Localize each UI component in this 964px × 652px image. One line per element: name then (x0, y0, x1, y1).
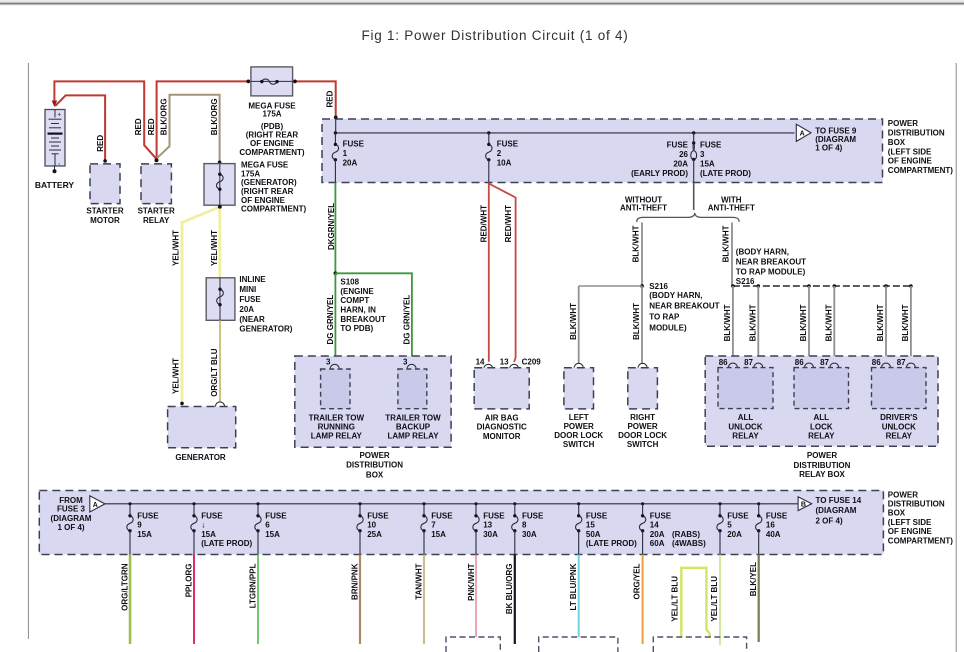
svg-text:POWER: POWER (888, 119, 918, 128)
svg-text:15A: 15A (201, 530, 216, 539)
svg-text:BATTERY: BATTERY (35, 180, 75, 190)
svg-text:RELAY: RELAY (732, 431, 759, 440)
svg-text:(LATE PROD): (LATE PROD) (700, 169, 751, 178)
svg-text:FUSE: FUSE (201, 512, 223, 521)
svg-text:FUSE: FUSE (239, 295, 261, 304)
svg-text:BOX: BOX (366, 470, 384, 479)
svg-text:BLK/WHT: BLK/WHT (632, 225, 641, 262)
svg-text:FUSE: FUSE (137, 512, 159, 521)
svg-text:POWER: POWER (807, 451, 837, 460)
svg-text:(EARLY PROD): (EARLY PROD) (631, 169, 688, 178)
svg-text:14: 14 (650, 521, 659, 530)
svg-text:+: + (58, 113, 62, 119)
svg-text:87: 87 (820, 358, 829, 367)
svg-text:(RIGHT REAR: (RIGHT REAR (241, 187, 294, 196)
svg-text:COMPARTMENT): COMPARTMENT) (888, 166, 954, 175)
svg-text:9: 9 (137, 521, 142, 530)
svg-text:2: 2 (497, 149, 502, 158)
svg-text:(BODY HARN,: (BODY HARN, (649, 291, 702, 300)
svg-text:1: 1 (343, 149, 348, 158)
svg-text:20A: 20A (343, 158, 358, 167)
svg-text:20A: 20A (673, 159, 688, 168)
svg-text:20A: 20A (239, 305, 254, 314)
svg-text:86: 86 (719, 358, 728, 367)
svg-text:(4WABS): (4WABS) (672, 539, 706, 548)
svg-text:BLK/WHT: BLK/WHT (722, 225, 731, 262)
svg-text:TRAILER TOW: TRAILER TOW (385, 413, 441, 422)
svg-text:RIGHT: RIGHT (630, 413, 655, 422)
svg-text:ANTI-THEFT: ANTI-THEFT (708, 203, 755, 212)
svg-text:RED: RED (326, 90, 335, 107)
svg-text:DG GRN/YEL: DG GRN/YEL (403, 295, 412, 345)
svg-text:DISTRIBUTION: DISTRIBUTION (888, 129, 945, 138)
svg-text:26: 26 (679, 150, 688, 159)
svg-text:BLK/WHT: BLK/WHT (901, 304, 910, 341)
svg-text:COMPARTMENT): COMPARTMENT) (241, 205, 307, 214)
svg-text:(PDB): (PDB) (261, 122, 284, 131)
svg-text:15: 15 (586, 521, 595, 530)
svg-text:Fig 1: Power Distribution Circ: Fig 1: Power Distribution Circuit (1 of … (361, 28, 628, 43)
svg-text:FUSE: FUSE (650, 512, 672, 521)
svg-text:POWER: POWER (564, 422, 594, 431)
svg-text:FROM: FROM (59, 496, 83, 505)
svg-text:STARTER: STARTER (86, 207, 123, 216)
svg-text:BLK/WHT: BLK/WHT (632, 303, 641, 340)
svg-text:MONITOR: MONITOR (483, 432, 521, 441)
svg-text:86: 86 (795, 358, 804, 367)
svg-text:TO FUSE 14: TO FUSE 14 (816, 496, 862, 505)
svg-text:FUSE: FUSE (483, 512, 505, 521)
svg-text:25A: 25A (367, 530, 382, 539)
svg-text:NEAR BREAKOUT: NEAR BREAKOUT (736, 257, 806, 266)
svg-text:ANTI-THEFT: ANTI-THEFT (620, 203, 667, 212)
svg-text:BLK/WHT: BLK/WHT (748, 304, 757, 341)
svg-text:PPLORG: PPLORG (184, 564, 193, 598)
svg-text:FUSE: FUSE (766, 512, 788, 521)
svg-text:GENERATOR: GENERATOR (175, 453, 226, 462)
svg-text:10: 10 (367, 521, 376, 530)
svg-text:15A: 15A (700, 159, 715, 168)
svg-text:ORG/YEL: ORG/YEL (633, 563, 642, 599)
svg-text:14: 14 (476, 358, 485, 367)
svg-text:BLK/WHT: BLK/WHT (876, 304, 885, 341)
svg-text:BLK/ORG: BLK/ORG (210, 98, 219, 135)
svg-text:A: A (800, 131, 805, 138)
svg-text:RELAY BOX: RELAY BOX (799, 470, 845, 479)
svg-text:175A: 175A (262, 109, 281, 118)
svg-text:LAMP RELAY: LAMP RELAY (311, 432, 363, 441)
svg-text:(DIAGRAM: (DIAGRAM (51, 514, 92, 523)
svg-text:6: 6 (265, 521, 270, 530)
svg-text:15A: 15A (431, 530, 446, 539)
svg-text:FUSE: FUSE (367, 512, 389, 521)
svg-text:RED: RED (96, 135, 105, 152)
svg-text:60A: 60A (650, 539, 665, 548)
svg-text:FUSE: FUSE (667, 141, 689, 150)
svg-text:RELAY: RELAY (808, 431, 835, 440)
svg-text:BRN/PNK: BRN/PNK (350, 563, 359, 600)
svg-text:STARTER: STARTER (138, 207, 175, 216)
svg-text:(LATE PROD): (LATE PROD) (586, 539, 637, 548)
svg-text:TO RAP: TO RAP (649, 313, 680, 322)
svg-text:HARN, IN: HARN, IN (340, 306, 376, 315)
svg-text:C209: C209 (522, 358, 542, 367)
svg-text:LAMP RELAY: LAMP RELAY (387, 432, 439, 441)
svg-text:DKGRN/YEL: DKGRN/YEL (327, 203, 336, 250)
svg-text:BLK/WHT: BLK/WHT (569, 303, 578, 340)
svg-text:DISTRIBUTION: DISTRIBUTION (346, 461, 403, 470)
svg-text:8: 8 (522, 521, 527, 530)
svg-text:ORG/LTGRN: ORG/LTGRN (120, 563, 129, 611)
svg-text:3: 3 (326, 358, 331, 367)
svg-text:DRIVER'S: DRIVER'S (880, 413, 918, 422)
svg-text:FUSE: FUSE (586, 512, 608, 521)
svg-text:COMPARTMENT): COMPARTMENT) (888, 536, 954, 545)
svg-text:RED: RED (147, 118, 156, 135)
svg-text:3: 3 (403, 358, 408, 367)
svg-text:BOX: BOX (888, 509, 906, 518)
svg-text:↓: ↓ (201, 521, 205, 530)
svg-text:COMPT: COMPT (340, 296, 369, 305)
svg-text:BK BLU/ORG: BK BLU/ORG (505, 564, 514, 615)
svg-text:YEL/LT BLU: YEL/LT BLU (710, 576, 719, 622)
svg-text:OF ENGINE: OF ENGINE (888, 157, 933, 166)
svg-text:(LATE PROD): (LATE PROD) (201, 539, 252, 548)
svg-text:DG GRN/YEL: DG GRN/YEL (326, 295, 335, 345)
svg-text:(RABS): (RABS) (672, 530, 700, 539)
svg-text:SWITCH: SWITCH (563, 440, 595, 449)
svg-text:RED: RED (134, 118, 143, 135)
svg-text:BREAKOUT: BREAKOUT (340, 315, 385, 324)
svg-text:-: - (58, 162, 60, 168)
svg-text:30A: 30A (522, 530, 537, 539)
svg-text:BLK/WHT: BLK/WHT (723, 304, 732, 341)
svg-text:20A: 20A (650, 530, 665, 539)
svg-text:FUSE: FUSE (431, 512, 453, 521)
svg-text:FUSE: FUSE (727, 512, 749, 521)
svg-text:TO PDB): TO PDB) (340, 324, 373, 333)
svg-text:BACKUP: BACKUP (396, 422, 431, 431)
svg-text:BLK/WHT: BLK/WHT (824, 304, 833, 341)
svg-text:LTGRN/PPL: LTGRN/PPL (248, 563, 257, 608)
svg-text:RED/WHT: RED/WHT (504, 205, 513, 242)
svg-text:OF ENGINE: OF ENGINE (888, 527, 933, 536)
svg-text:(GENERATOR): (GENERATOR) (241, 178, 297, 187)
svg-text:GENERATOR): GENERATOR) (239, 325, 292, 334)
svg-text:FUSE: FUSE (265, 512, 287, 521)
svg-text:S108: S108 (340, 278, 359, 287)
svg-text:NEAR BREAKOUT: NEAR BREAKOUT (649, 302, 719, 311)
svg-text:BOX: BOX (888, 138, 906, 147)
svg-text:POWER: POWER (888, 490, 918, 499)
svg-text:TAN/WHT: TAN/WHT (414, 563, 423, 599)
svg-text:1 OF 4): 1 OF 4) (57, 523, 84, 532)
svg-text:S216: S216 (736, 277, 755, 286)
svg-text:15A: 15A (265, 530, 280, 539)
svg-text:86: 86 (872, 358, 881, 367)
svg-text:20A: 20A (727, 530, 742, 539)
svg-text:DOOR LOCK: DOOR LOCK (554, 431, 603, 440)
svg-text:LT BLU/PNK: LT BLU/PNK (569, 563, 578, 610)
svg-text:SWITCH: SWITCH (627, 440, 659, 449)
svg-text:YEL/LT BLU: YEL/LT BLU (671, 576, 680, 622)
svg-text:OF ENGINE: OF ENGINE (241, 196, 286, 205)
svg-text:(DIAGRAM: (DIAGRAM (816, 506, 857, 515)
svg-text:FUSE: FUSE (522, 512, 544, 521)
svg-text:YEL/WHT: YEL/WHT (210, 230, 219, 266)
svg-text:S216: S216 (649, 282, 668, 291)
svg-text:16: 16 (766, 521, 775, 530)
svg-text:(NEAR: (NEAR (239, 315, 265, 324)
svg-text:MEGA FUSE: MEGA FUSE (241, 161, 289, 170)
svg-text:BLK/WHT: BLK/WHT (799, 304, 808, 341)
svg-text:87: 87 (744, 358, 753, 367)
svg-text:LEFT: LEFT (569, 413, 589, 422)
svg-text:7: 7 (431, 521, 436, 530)
svg-text:(BODY HARN,: (BODY HARN, (736, 248, 789, 257)
svg-text:TO RAP MODULE): TO RAP MODULE) (736, 267, 806, 276)
svg-text:INLINE: INLINE (239, 275, 266, 284)
svg-text:FUSE: FUSE (700, 141, 722, 150)
svg-text:DISTRIBUTION: DISTRIBUTION (794, 461, 851, 470)
svg-text:DOOR LOCK: DOOR LOCK (618, 431, 667, 440)
svg-text:B: B (801, 501, 806, 508)
svg-text:POWER: POWER (627, 422, 657, 431)
svg-text:FUSE: FUSE (343, 140, 365, 149)
svg-text:(LEFT SIDE: (LEFT SIDE (888, 147, 932, 156)
svg-text:1 OF 4): 1 OF 4) (815, 143, 842, 152)
svg-text:YEL/WHT: YEL/WHT (171, 358, 180, 394)
svg-text:87: 87 (897, 358, 906, 367)
svg-text:RED/WHT: RED/WHT (480, 205, 489, 242)
svg-text:LOCK: LOCK (810, 422, 833, 431)
svg-text:MINI: MINI (239, 285, 256, 294)
svg-text:RELAY: RELAY (886, 431, 913, 440)
svg-text:(ENGINE: (ENGINE (340, 287, 374, 296)
svg-text:30A: 30A (483, 530, 498, 539)
svg-text:ORG/LT BLU: ORG/LT BLU (210, 348, 219, 397)
svg-text:50A: 50A (586, 530, 601, 539)
svg-text:15A: 15A (137, 530, 152, 539)
svg-text:TRAILER TOW: TRAILER TOW (309, 413, 365, 422)
svg-text:2 OF 4): 2 OF 4) (816, 517, 843, 526)
svg-text:10A: 10A (497, 158, 512, 167)
svg-text:FUSE 3: FUSE 3 (57, 505, 86, 514)
svg-text:UNLOCK: UNLOCK (882, 422, 916, 431)
svg-text:ALL: ALL (738, 413, 754, 422)
svg-text:BLK/YEL: BLK/YEL (749, 562, 758, 596)
svg-text:YEL/WHT: YEL/WHT (172, 230, 181, 266)
svg-text:PNK/WHT: PNK/WHT (467, 563, 476, 600)
svg-text:A: A (93, 502, 98, 509)
svg-text:ALL: ALL (814, 413, 830, 422)
svg-text:DISTRIBUTION: DISTRIBUTION (888, 500, 945, 509)
svg-text:BLK/ORG: BLK/ORG (159, 98, 168, 135)
svg-text:13: 13 (500, 358, 509, 367)
svg-text:40A: 40A (766, 530, 781, 539)
svg-text:13: 13 (483, 521, 492, 530)
svg-text:RUNNING: RUNNING (318, 422, 355, 431)
svg-text:POWER: POWER (359, 451, 389, 460)
svg-text:FUSE: FUSE (497, 140, 519, 149)
svg-text:DIAGNOSTIC: DIAGNOSTIC (477, 423, 527, 432)
svg-text:5: 5 (727, 521, 732, 530)
svg-text:RELAY: RELAY (143, 216, 170, 225)
svg-text:AIR BAG: AIR BAG (485, 414, 519, 423)
svg-text:175A: 175A (241, 169, 260, 178)
svg-text:(LEFT SIDE: (LEFT SIDE (888, 518, 932, 527)
svg-text:COMPARTMENT): COMPARTMENT) (239, 148, 305, 157)
svg-text:MOTOR: MOTOR (90, 216, 120, 225)
svg-text:3: 3 (700, 150, 705, 159)
svg-text:MODULE): MODULE) (649, 324, 687, 333)
svg-text:UNLOCK: UNLOCK (728, 422, 762, 431)
